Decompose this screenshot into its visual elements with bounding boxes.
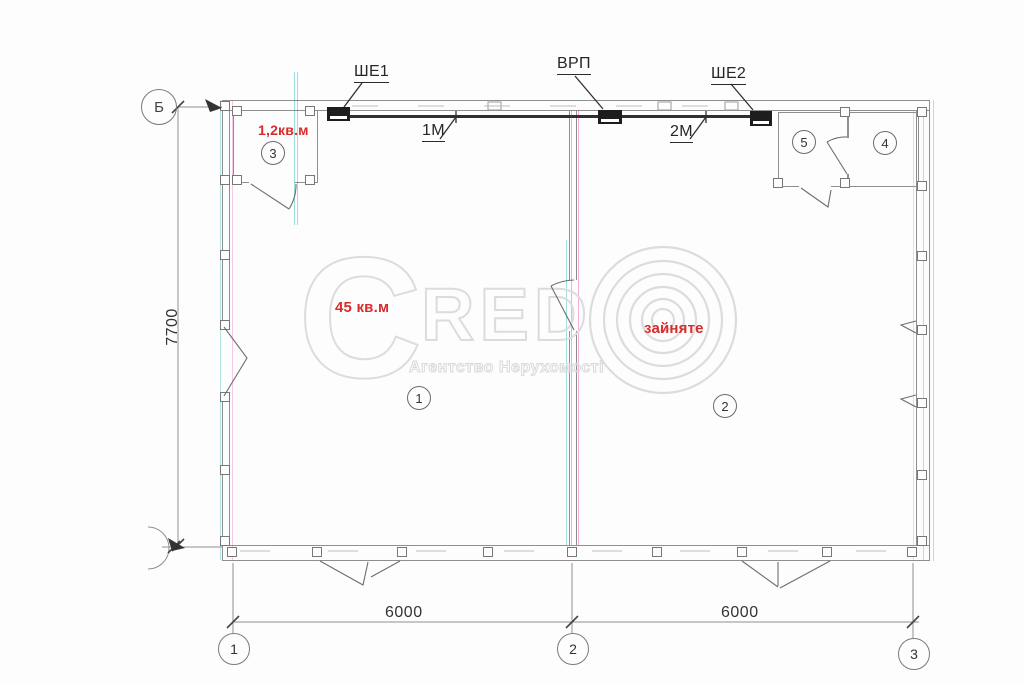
- room1-area-label: 45 кв.м: [335, 299, 389, 316]
- cable-line2-label: 2М: [670, 124, 693, 143]
- panel-vrp-label: ВРП: [557, 56, 591, 75]
- room-number-2: 2: [713, 394, 737, 418]
- panel-she1: [327, 107, 350, 121]
- room-number-3: 3: [261, 141, 285, 165]
- axis-marker-1: 1: [218, 633, 250, 665]
- wall-top-outer: [222, 100, 930, 101]
- axis-marker-3: 3: [898, 638, 930, 670]
- wall-bottom-outer: [222, 560, 930, 561]
- axis-marker-2: 2: [557, 633, 589, 665]
- dimension-left: 7700: [164, 300, 182, 354]
- power-cable-line: [349, 115, 752, 118]
- floor-plan-scan: C RED Агентство Нерухомості: [0, 0, 1024, 683]
- room-number-5: 5: [792, 130, 816, 154]
- wall-right-outer: [929, 100, 930, 561]
- wall-left-inner: [229, 110, 230, 546]
- wall-center-b: [576, 110, 577, 280]
- room-number-1: 1: [407, 386, 431, 410]
- room2-status-label: зайняте: [644, 320, 704, 337]
- watermark-letter-c: C: [298, 232, 422, 404]
- room3-area-label: 1,2кв.м: [258, 122, 309, 138]
- axis-marker-left-top: Б: [141, 89, 177, 125]
- room-number-4: 4: [873, 131, 897, 155]
- panel-vrp: [598, 110, 622, 124]
- watermark-letters-red: RED: [421, 278, 592, 352]
- wall-center-a: [569, 110, 570, 280]
- dimension-bottom-left: 6000: [385, 604, 423, 622]
- dimension-bottom-right: 6000: [721, 604, 759, 622]
- panel-she2-label: ШЕ2: [711, 66, 746, 85]
- panel-she2: [750, 111, 772, 126]
- wall-bottom-inner: [222, 545, 930, 546]
- cable-line1-label: 1М: [422, 123, 445, 142]
- watermark-subtitle: Агентство Нерухомості: [409, 359, 604, 377]
- panel-she1-label: ШЕ1: [354, 64, 389, 83]
